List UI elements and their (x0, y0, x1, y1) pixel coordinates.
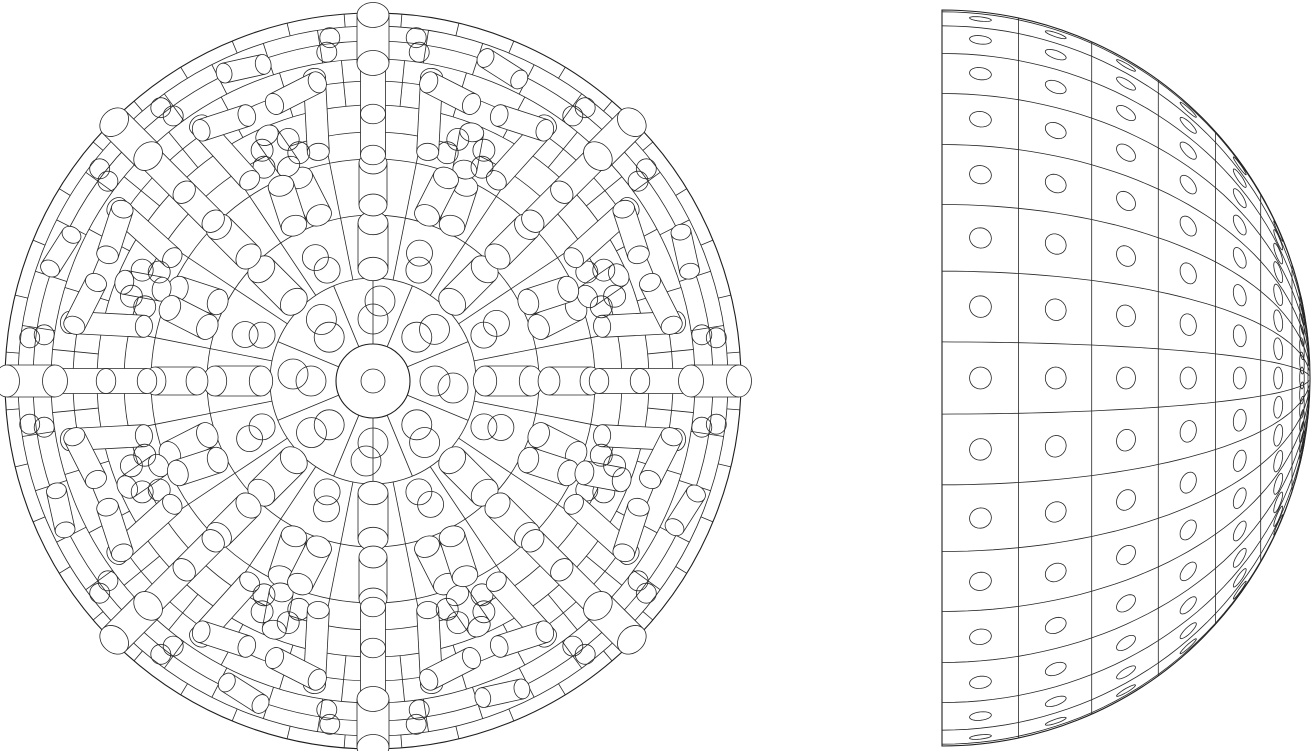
plan-view-drawing (0, 3, 751, 751)
side-elevation-drawing (942, 10, 1310, 746)
technical-drawing-canvas (0, 0, 1313, 751)
drawing-sheet (0, 0, 1313, 751)
